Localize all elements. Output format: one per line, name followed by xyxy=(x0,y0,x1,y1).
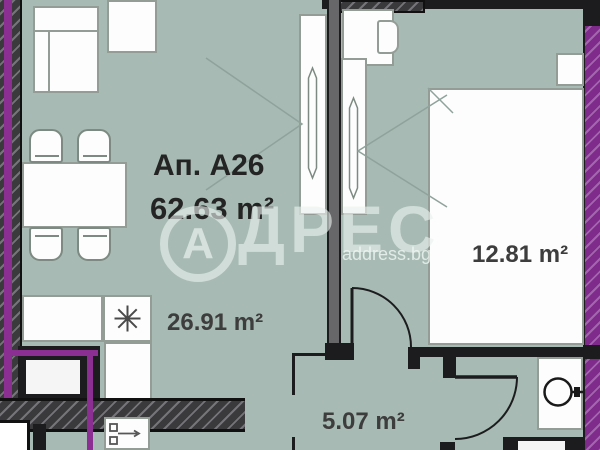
floor-plan-canvas: Ап. А26 62.63 m² 26.91 m² 12.81 m² 5.07 … xyxy=(0,0,600,450)
partition-wall xyxy=(327,0,341,347)
nightstand xyxy=(556,53,584,86)
bathroom-door-jamb xyxy=(443,357,456,378)
watermark-logo-letter: А xyxy=(182,222,214,266)
hallway-area-label: 5.07 m² xyxy=(322,408,405,436)
watermark-logo-ring: А xyxy=(160,206,236,282)
dining-chair xyxy=(77,227,111,261)
watermark-site: address.bg xyxy=(342,244,431,265)
bathroom-counter xyxy=(537,357,583,430)
bedroom-area-label: 12.81 m² xyxy=(472,241,568,269)
sofa-chaise xyxy=(33,6,99,93)
living-area-label: 26.91 m² xyxy=(167,309,263,337)
bathroom-south-wall-notch xyxy=(518,441,565,450)
dining-chair xyxy=(29,227,63,261)
sofa-seat xyxy=(107,0,157,53)
bottom-left-wall-stub xyxy=(33,424,46,450)
dining-chair xyxy=(29,129,63,163)
insulation-line-left xyxy=(4,0,12,450)
insulation-line-shaft-v xyxy=(87,350,93,450)
room-divider-line-h xyxy=(292,353,332,356)
wardrobe-panel-left xyxy=(299,14,327,215)
bed xyxy=(428,88,584,345)
insulation-line-shaft-h xyxy=(4,350,98,356)
sofa-cushion-line-h xyxy=(35,30,97,32)
partition-door-jamb xyxy=(325,343,354,360)
kitchen-counter xyxy=(22,295,103,342)
room-divider-line-v xyxy=(292,353,295,395)
bathroom-door-bottom-jamb xyxy=(440,442,455,450)
bottom-left-opening xyxy=(0,420,30,450)
right-wall-junction xyxy=(585,345,600,359)
room-divider-line-v2 xyxy=(292,437,295,450)
dining-chair xyxy=(77,129,111,163)
apartment-title: Ап. А26 xyxy=(153,149,265,183)
dining-table xyxy=(22,162,127,228)
right-exterior-wall xyxy=(583,5,600,450)
desk-chair xyxy=(377,20,399,54)
sofa-cushion-line-v xyxy=(48,30,50,91)
stove xyxy=(103,295,152,342)
duct-shaft-cavity xyxy=(26,360,80,394)
right-wall-corner-cap xyxy=(585,5,600,26)
bedroom-wall-end-stub xyxy=(408,347,420,369)
bathroom-south-wall xyxy=(503,437,583,450)
bedroom-south-wall xyxy=(408,347,585,357)
kitchen-sink xyxy=(104,417,150,450)
